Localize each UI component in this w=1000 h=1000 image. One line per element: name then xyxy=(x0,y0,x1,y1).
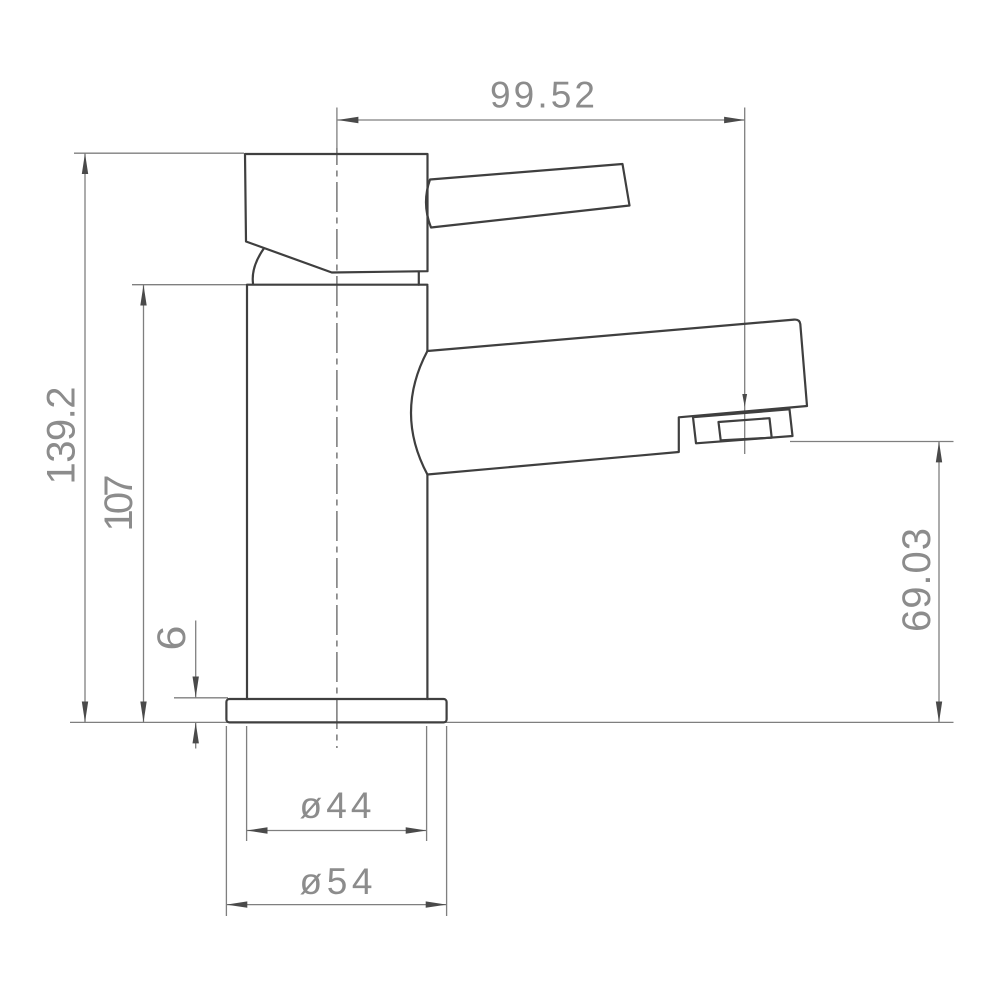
svg-text:107: 107 xyxy=(97,475,141,532)
svg-text:139.2: 139.2 xyxy=(40,387,84,485)
svg-text:99.52: 99.52 xyxy=(490,75,595,116)
svg-text:ø44: ø44 xyxy=(300,785,372,826)
svg-text:69.03: 69.03 xyxy=(895,528,939,632)
svg-text:6: 6 xyxy=(150,626,194,651)
svg-text:ø54: ø54 xyxy=(300,861,373,902)
